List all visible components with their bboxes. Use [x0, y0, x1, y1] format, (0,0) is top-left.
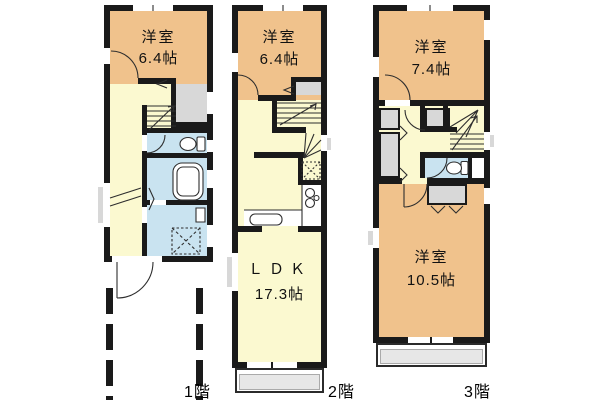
wall-segment [238, 226, 262, 232]
window-sill [227, 257, 232, 287]
wall-segment [468, 158, 472, 178]
room-area-label: 6.4帖 [110, 51, 207, 68]
room-name-label: 洋室 [379, 40, 484, 57]
window [133, 5, 173, 11]
entrance-opening [112, 256, 162, 262]
window [207, 140, 213, 152]
balcony-floor [380, 349, 483, 364]
room-name-label: ＬＤＫ [238, 262, 321, 279]
door-opening [142, 207, 147, 223]
window [207, 92, 213, 114]
window [484, 188, 490, 204]
room-name-label: 洋室 [379, 250, 484, 267]
window-sill [327, 138, 331, 150]
room-area-label: 7.4帖 [379, 62, 484, 79]
wall-segment [142, 153, 207, 158]
window [373, 228, 379, 248]
wall-segment [142, 133, 147, 256]
window-sill [490, 135, 494, 147]
wall-segment [420, 106, 425, 128]
room-name-label: 洋室 [110, 30, 207, 47]
window [104, 183, 110, 227]
parking-dashed-line [106, 288, 113, 400]
wall-segment [420, 158, 425, 178]
window-sill [98, 187, 103, 223]
wall-segment [296, 77, 321, 82]
window [207, 170, 213, 188]
door-opening [142, 135, 147, 151]
entrance-door-swing-icon [117, 262, 153, 298]
window-sill [368, 231, 373, 245]
door-opening [385, 100, 410, 106]
window [407, 5, 453, 11]
room-area-label: 10.5帖 [379, 273, 484, 290]
balcony-floor [239, 374, 320, 390]
wall-segment [373, 178, 402, 184]
wall-segment [298, 226, 321, 232]
floor-label-1f: 1階 [184, 378, 211, 400]
window [207, 225, 213, 247]
wall-segment [427, 178, 490, 184]
room-name-label: 洋室 [238, 30, 321, 47]
wall-segment [171, 78, 176, 128]
wall-segment [298, 180, 321, 185]
wall-segment [254, 152, 304, 158]
room-area-label: 17.3帖 [238, 287, 321, 304]
wall-segment [142, 128, 207, 133]
floorplan-canvas: 洋室 6.4帖 洋室 [0, 0, 600, 400]
window [263, 5, 303, 11]
wall-segment [298, 158, 303, 182]
wall-segment [420, 127, 457, 132]
floor-label-3f: 3階 [464, 378, 491, 400]
window [484, 20, 490, 40]
door-opening [150, 200, 166, 205]
wall-segment [420, 152, 490, 158]
floor-label-2f: 2階 [328, 378, 355, 400]
wall-segment [272, 127, 306, 133]
room-area-label: 6.4帖 [238, 52, 321, 69]
